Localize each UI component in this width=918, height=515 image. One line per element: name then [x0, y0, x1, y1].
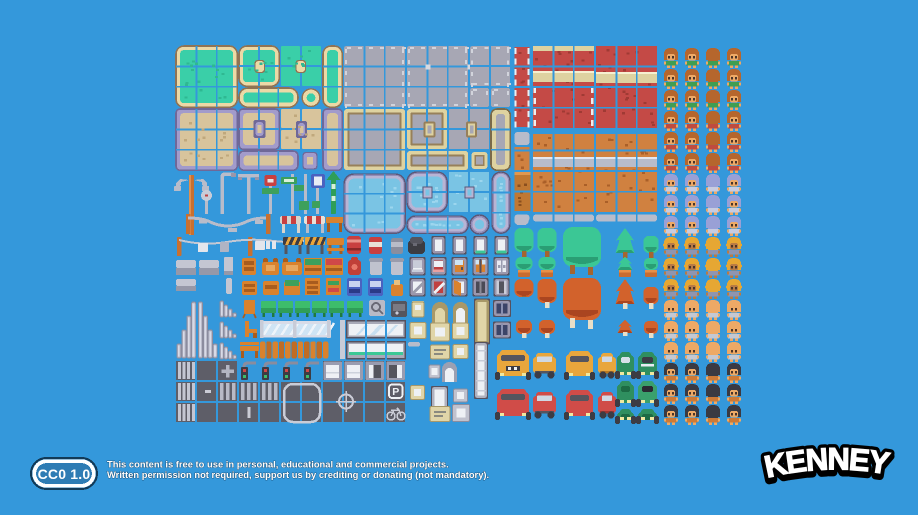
svg-text:CC0 1.0: CC0 1.0: [38, 466, 91, 482]
svg-text:P: P: [392, 386, 399, 398]
svg-text:Written permission not require: Written permission not required, support…: [107, 469, 489, 480]
